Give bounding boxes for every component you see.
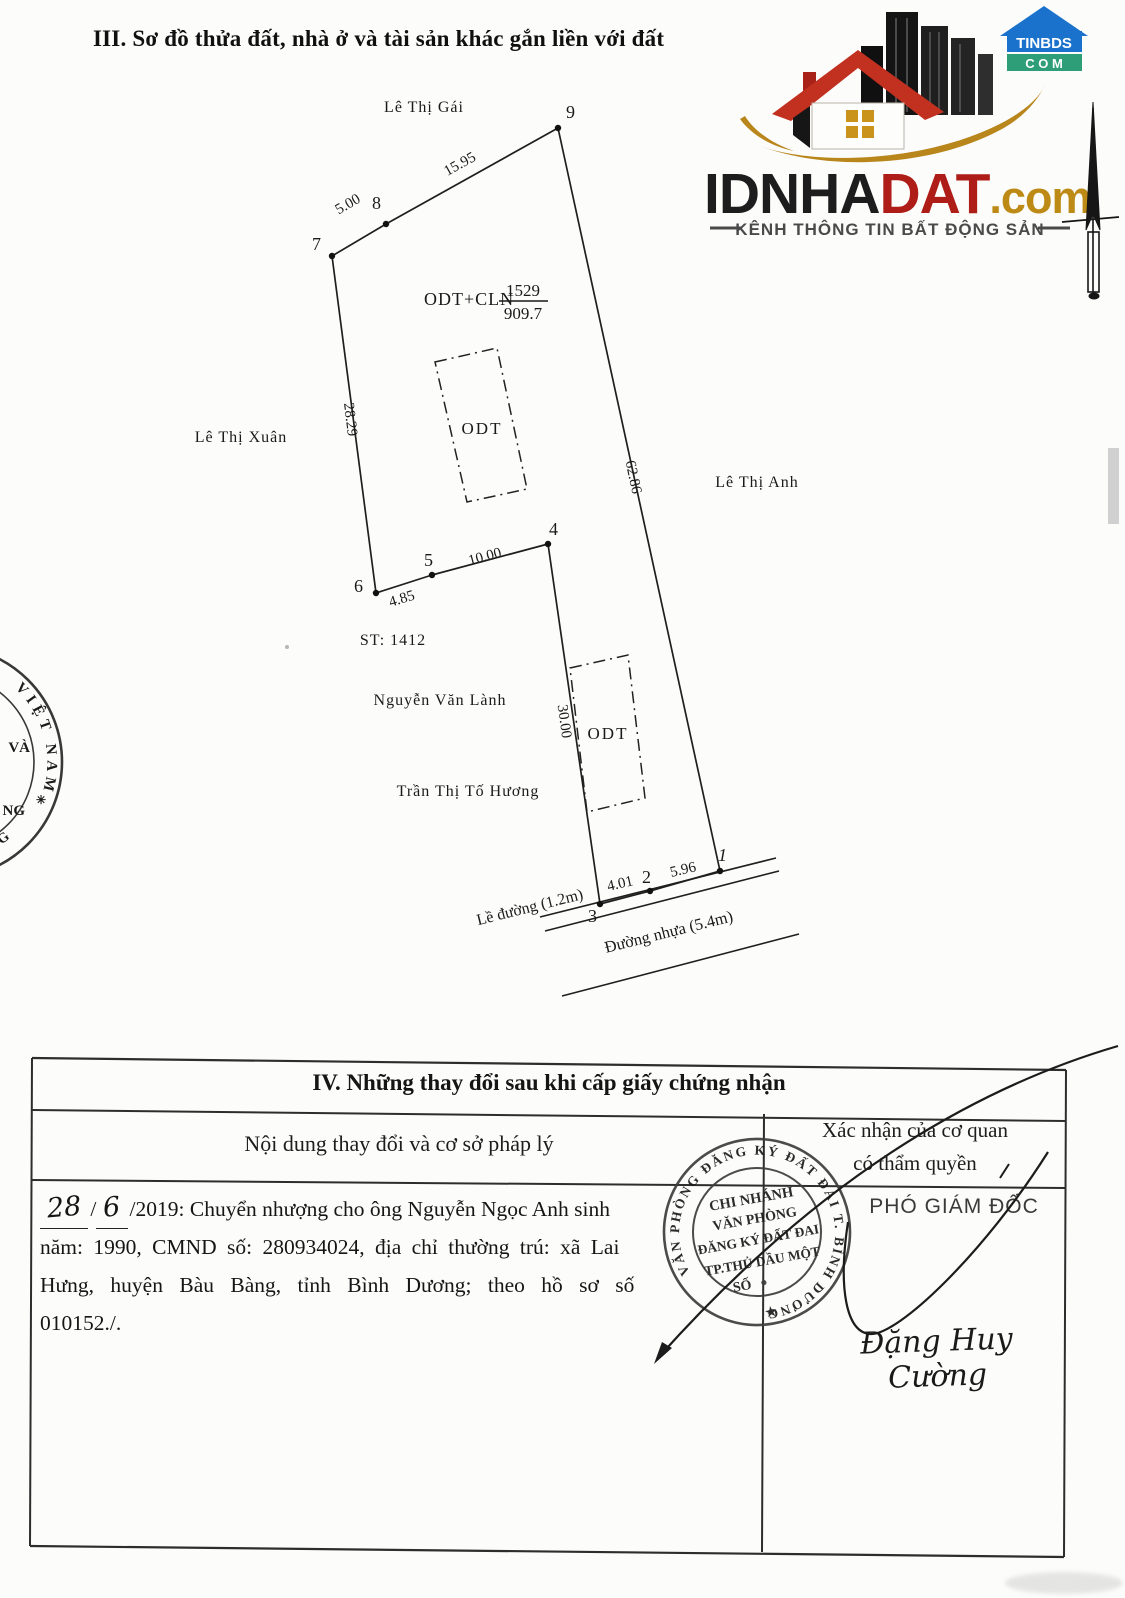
svg-text:VIỆT NAM: VIỆT NAM (12, 680, 59, 798)
road-edge-2 (545, 871, 779, 931)
vertex-dots (329, 125, 723, 907)
signature-name: Đặng Huy Cường (811, 1320, 1063, 1399)
length-7-6: 28.29 (340, 402, 360, 437)
entry-line1-text: /2019: Chuyển nhượng cho ông Nguyễn Ngọc… (130, 1197, 610, 1221)
svg-text:DUONG: DUONG (0, 827, 16, 867)
entry-line2: năm: 1990, CMND số: 280934024, địa chỉ t… (40, 1228, 756, 1266)
road-edge-1 (540, 858, 776, 917)
length-5-4: 10.00 (467, 545, 504, 569)
scan-speck (285, 645, 289, 649)
confirmation-line2: có thẩm quyền (766, 1147, 1064, 1180)
vertex-5: 5 (424, 550, 433, 570)
neighbor-west: Lê Thị Xuân (195, 429, 287, 446)
entry-line4: 010152./. (40, 1304, 756, 1342)
vertex-3: 3 (588, 906, 597, 926)
left-stamp-star: ✳ (36, 793, 46, 807)
tinbds-text: TINBDS (1016, 35, 1072, 52)
sheet-note: ST: 1412 (360, 632, 426, 649)
stamp-star: ★ (763, 1304, 779, 1322)
column-header-content: Nội dung thay đổi và cơ sở pháp lý (34, 1131, 764, 1157)
neighbor-north: Lê Thị Gái (384, 99, 464, 116)
vertex-7: 7 (312, 234, 321, 254)
left-stamp-frag2: NG (3, 803, 26, 819)
brand-tagline: KÊNH THÔNG TIN BẤT ĐỘNG SẢN (735, 220, 1044, 239)
confirmation-line1: Xác nhận của cơ quan (766, 1114, 1064, 1147)
parcel-label: ODT+CLN 1529 909.7 (424, 281, 548, 323)
parcel-area: 909.7 (504, 304, 543, 323)
section3-title: III. Sơ đồ thửa đất, nhà ở và tài sản kh… (93, 26, 664, 52)
parcel-boundary (332, 128, 720, 904)
entry-line3: Hưng, huyện Bàu Bàng, tỉnh Bình Dương; t… (40, 1266, 756, 1304)
amendment-entry: 28/6/2019: Chuyển nhượng cho ông Nguyễn … (40, 1190, 756, 1342)
buildings-icon (861, 12, 993, 115)
vertex-4: 4 (549, 519, 558, 539)
left-stamp-arc-bottom: DUONG (0, 827, 16, 867)
watermark-logo: TINBDS C O M IDNHADAT.com KÊNH THÔNG TIN… (690, 0, 1125, 248)
left-partial-stamp: VIỆT NAM DUONG VÀ NG ✳ (0, 646, 62, 878)
vertex-8: 8 (372, 193, 381, 213)
length-4-3: 30.00 (554, 704, 575, 740)
neighbor-south-2: Trần Thị Tố Hương (397, 783, 540, 800)
column-header-confirmation: Xác nhận của cơ quan có thẩm quyền (766, 1114, 1064, 1180)
length-6-5: 4.85 (387, 588, 417, 611)
approver-title: PHÓ GIÁM ĐỐC (848, 1195, 1060, 1219)
handwritten-day: 28 (39, 1191, 90, 1225)
house-footprint-2 (570, 655, 645, 812)
vertex-6: 6 (354, 576, 363, 596)
house-label-1: ODT (462, 419, 503, 438)
length-8-9: 15.95 (441, 149, 478, 179)
house-footprint-1 (435, 348, 527, 502)
neighbor-east: Lê Thị Anh (715, 474, 798, 491)
scan-artifact-bar (1108, 448, 1119, 524)
road-edge-3 (562, 934, 799, 996)
road-shoulder-label: Lề đường (1.2m) (475, 886, 585, 929)
neighbor-south-1: Nguyễn Văn Lành (374, 692, 507, 709)
section4-title: IV. Những thay đổi sau khi cấp giấy chứn… (32, 1070, 1066, 1096)
left-stamp-frag1: VÀ (8, 739, 30, 756)
vertex-9: 9 (566, 102, 575, 122)
length-7-8: 5.00 (333, 191, 364, 218)
house-icon (772, 50, 944, 149)
brand-wordmark: IDNHADAT.com (704, 162, 1090, 226)
house-label-2: ODT (588, 724, 629, 743)
length-9-1: 62.86 (622, 459, 645, 496)
tinbds-badge: TINBDS C O M (1000, 6, 1088, 71)
parcel-number: 1529 (506, 281, 540, 300)
entry-line1: 28/6/2019: Chuyển nhượng cho ông Nguyễn … (40, 1190, 756, 1228)
certificate-page: III. Sơ đồ thửa đất, nhà ở và tài sản kh… (0, 0, 1125, 1598)
road-name-label: Đường nhựa (5.4m) (603, 907, 735, 957)
length-2-1: 5.96 (669, 859, 699, 881)
handwritten-month: 6 (95, 1192, 129, 1225)
left-stamp-arc-top: VIỆT NAM (12, 680, 59, 798)
scan-smudge (1005, 1572, 1123, 1594)
vertex-1: 1 (718, 845, 727, 865)
tinbds-com-text: C O M (1025, 56, 1063, 71)
parcel-use-label: ODT+CLN (424, 289, 514, 309)
length-3-2: 4.01 (606, 873, 635, 894)
vertex-2: 2 (642, 867, 651, 887)
